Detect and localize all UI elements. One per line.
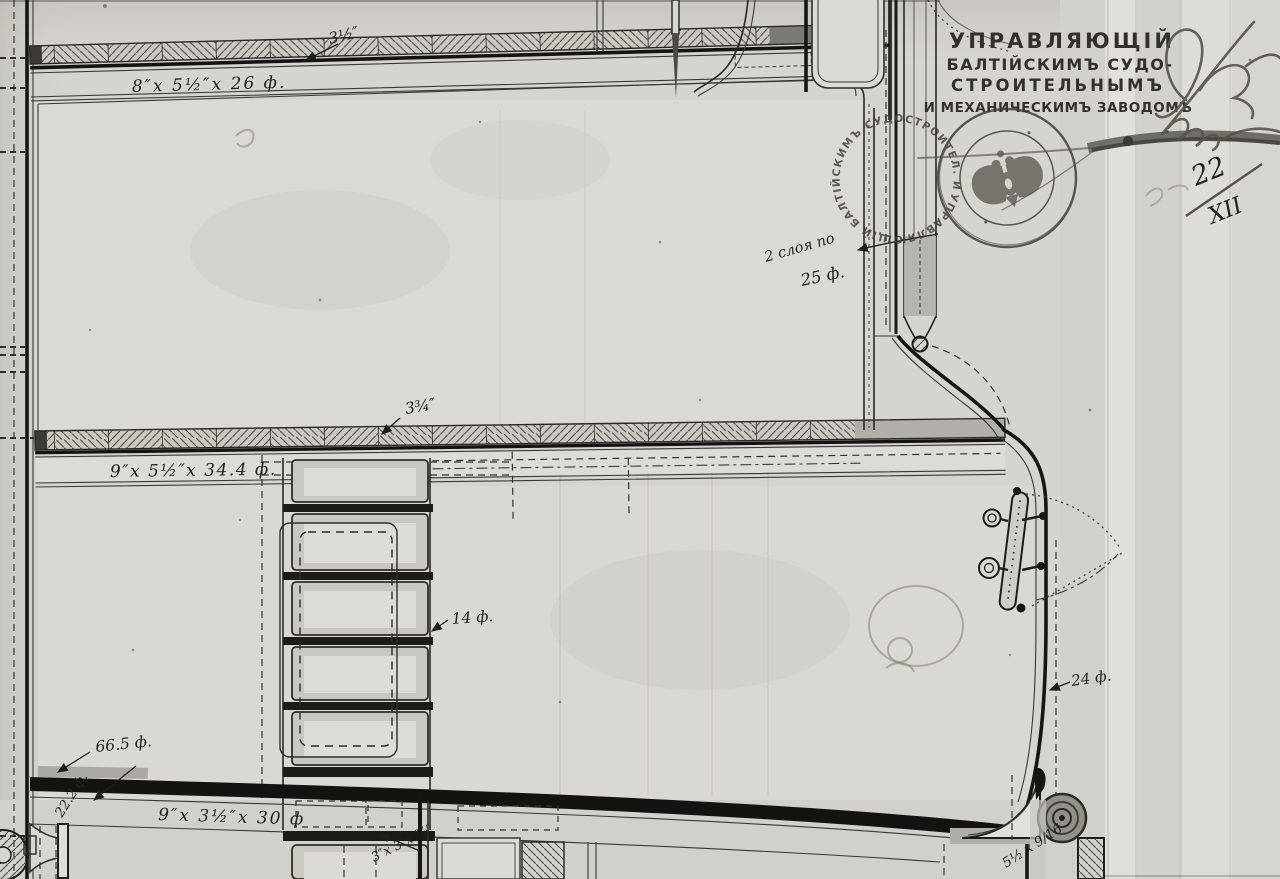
office-stamp-line1: УПРАВЛЯЮЩІЙ [949,28,1175,53]
left-frame-edge [0,0,34,879]
drawing-linework: 3½″ 8″x 5½″x 26 ф. 2 слоя по 25 ф. 3¾″ 9… [0,0,1280,879]
office-stamp-line3: СТРОИТЕЛЬНЫМЪ [951,76,1165,95]
printed-office-stamp: УПРАВЛЯЮЩІЙ БАЛТІЙСКИМЪ СУДО- СТРОИТЕЛЬН… [924,28,1193,116]
blueprint-scan: 3½″ 8″x 5½″x 26 ф. 2 слоя по 25 ф. 3¾″ 9… [0,0,1280,879]
annotation-beam-top: 8″x 5½″x 26 ф. [132,73,287,97]
office-stamp-line4: И МЕХАНИЧЕСКИМЪ ЗАВОДОМЪ [924,100,1193,116]
annotation-skylight-length: 14 ф. [451,607,494,628]
annotation-beam-mid: 9″x 5½″x 34.4 ф. [110,460,277,482]
office-stamp-line2: БАЛТІЙСКИМЪ СУДО- [947,55,1174,74]
